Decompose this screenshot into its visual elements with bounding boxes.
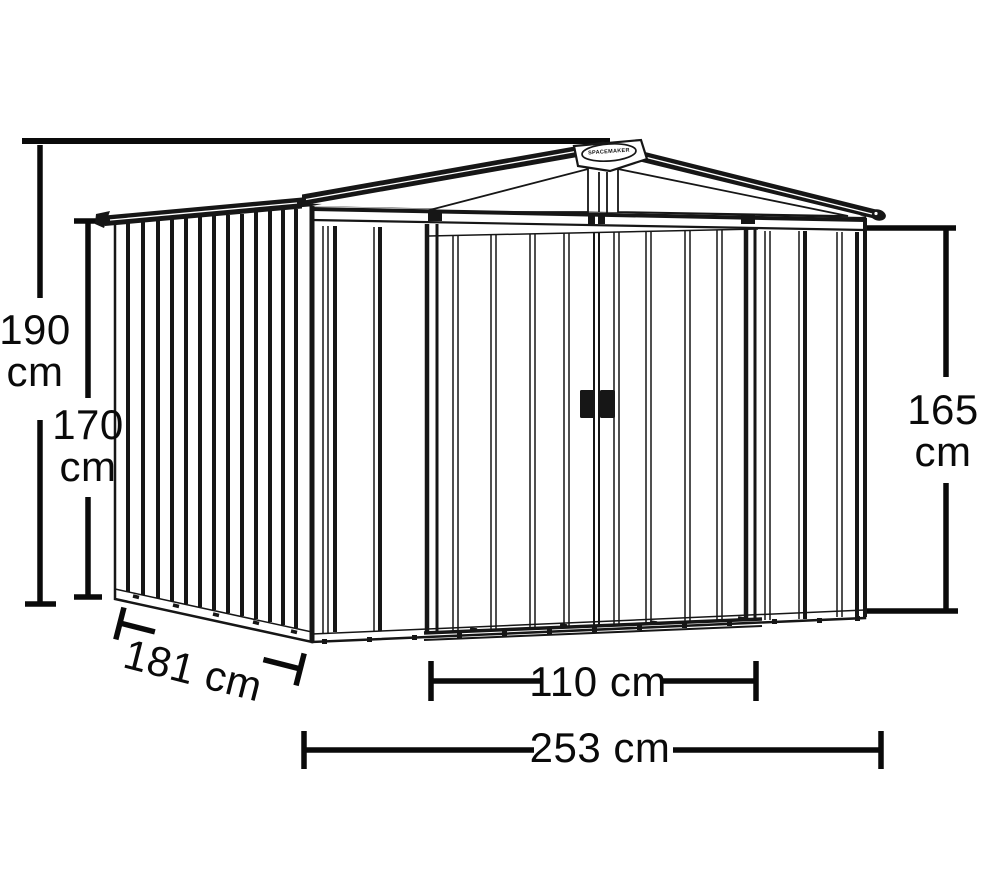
overall-width-text: 253 cm: [530, 724, 671, 771]
brand-name: SPACEMAKER: [588, 148, 630, 157]
shed-line-drawing: [0, 0, 1000, 892]
eave-height-unit: cm: [899, 431, 987, 473]
door-handle-right: [600, 390, 615, 418]
wall-height-value: 170: [52, 401, 124, 448]
overall-height-value: 190: [0, 306, 71, 353]
door-handle-left: [580, 390, 595, 418]
overall-height-unit: cm: [0, 351, 74, 393]
side-wall: [115, 205, 312, 642]
front-wall: [312, 205, 865, 642]
shed-body: [95, 140, 887, 644]
dimension-label-eave-height: 165 cm: [899, 389, 987, 473]
dimension-label-door-width: 110 cm: [528, 661, 668, 703]
dimension-label-overall-height: 190 cm: [0, 309, 74, 393]
eave-height-value: 165: [907, 386, 979, 433]
wall-height-unit: cm: [44, 446, 132, 488]
dimension-label-overall-width: 253 cm: [525, 727, 675, 769]
door-width-text: 110 cm: [529, 658, 667, 705]
shed-dimension-diagram: 190 cm 170 cm 165 cm 181 cm 110 cm 253 c…: [0, 0, 1000, 892]
dimension-label-wall-height: 170 cm: [44, 404, 132, 488]
